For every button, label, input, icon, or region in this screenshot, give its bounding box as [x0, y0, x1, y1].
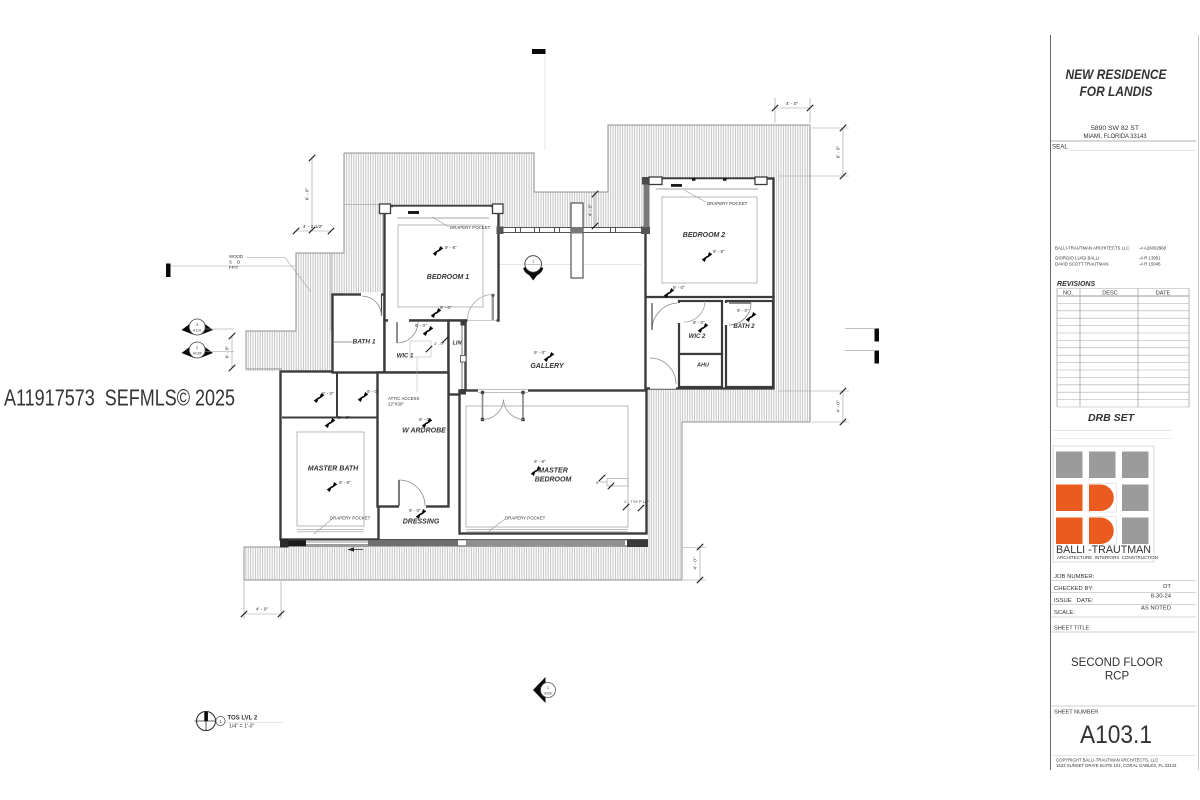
svg-text:9' - 0": 9' - 0" — [440, 305, 452, 310]
svg-text:4' - 2 1/2": 4' - 2 1/2" — [303, 224, 324, 230]
svg-text:9' - 8": 9' - 8" — [713, 249, 725, 254]
svg-text:1: 1 — [219, 719, 222, 724]
svg-text:MASTER: MASTER — [538, 468, 568, 475]
svg-text:BEDROOM: BEDROOM — [535, 477, 572, 484]
svg-text:TOS LVL 2: TOS LVL 2 — [228, 716, 258, 722]
svg-text:8-30-24: 8-30-24 — [1151, 594, 1172, 600]
svg-text:GALLERY: GALLERY — [530, 363, 565, 370]
svg-text:ATTIC ACCESS: ATTIC ACCESS — [388, 396, 419, 401]
svg-text:LIN: LIN — [453, 341, 463, 347]
svg-text:RCP: RCP — [1105, 671, 1130, 683]
svg-text:DAVID SCOTT TRAUTMAN: DAVID SCOTT TRAUTMAN — [1055, 262, 1108, 267]
svg-text:6' - 0": 6' - 0" — [305, 188, 311, 201]
svg-text:MIAMI, FLORIDA 33143: MIAMI, FLORIDA 33143 — [1084, 133, 1147, 140]
svg-text:SECOND FLOOR: SECOND FLOOR — [1071, 657, 1163, 669]
svg-text:22"X30": 22"X30" — [388, 402, 404, 407]
svg-text:COPYRIGHT BALLI-TRAUTMAN ARCHI: COPYRIGHT BALLI-TRAUTMAN ARCHITECTS, LLC — [1056, 758, 1158, 763]
svg-text:BALLI-TRAUTMAN ARCHITECTS LLC: BALLI-TRAUTMAN ARCHITECTS LLC — [1055, 246, 1130, 251]
svg-text:1533 SUNSET DRIVE SUITE 101, C: 1533 SUNSET DRIVE SUITE 101, CORAL GABLE… — [1056, 763, 1177, 768]
svg-text:1' - 7 5Y P 1/2": 1' - 7 5Y P 1/2" — [624, 500, 650, 504]
svg-text:9' - 8": 9' - 8" — [534, 459, 546, 464]
svg-text:JOB NUMBER:: JOB NUMBER: — [1054, 574, 1095, 580]
svg-text:A103.1: A103.1 — [1080, 721, 1152, 749]
svg-text:9' - 0": 9' - 0" — [415, 323, 427, 328]
svg-text:NO.: NO. — [1063, 291, 1073, 297]
svg-text:4' - 0": 4' - 0" — [588, 204, 594, 217]
svg-text:NEW RESIDENCE: NEW RESIDENCE — [1066, 66, 1168, 82]
svg-text:W ARDROBE: W ARDROBE — [402, 428, 446, 435]
svg-text:4' - 0": 4' - 0" — [786, 101, 799, 107]
svg-text:A 101: A 101 — [193, 328, 202, 332]
svg-text:4' - 0": 4' - 0" — [836, 400, 842, 413]
svg-text:6' - 0": 6' - 0" — [836, 146, 842, 159]
svg-text:SCALE:: SCALE: — [1054, 610, 1075, 616]
svg-text:9' - 8": 9' - 8" — [445, 245, 457, 250]
svg-text:CHECKED BY:: CHECKED BY: — [1054, 586, 1094, 592]
svg-text:DATE: DATE — [1156, 291, 1171, 297]
svg-text:WOOD: WOOD — [229, 254, 243, 259]
svg-text:A/106: A/106 — [193, 351, 202, 355]
svg-text:BATH 2: BATH 2 — [733, 324, 755, 330]
svg-text:WIC 2: WIC 2 — [689, 334, 706, 340]
svg-text:-A R 15045: -A R 15045 — [1139, 262, 1161, 267]
svg-text:9' - 0": 9' - 0" — [409, 508, 421, 513]
svg-text:A106: A106 — [544, 692, 552, 696]
svg-text:BEDROOM 2: BEDROOM 2 — [683, 232, 726, 239]
svg-text:9' - 0": 9' - 0" — [367, 389, 379, 394]
svg-text:WIC 1: WIC 1 — [397, 354, 414, 360]
svg-text:MASTER BATH: MASTER BATH — [308, 466, 359, 473]
svg-text:9' - 0": 9' - 0" — [534, 350, 546, 355]
svg-text:9' - 0": 9' - 0" — [322, 391, 334, 396]
svg-text:-A A26002968: -A A26002968 — [1139, 246, 1167, 251]
svg-text:S O: S O — [229, 260, 241, 265]
svg-text:DRAPERY POCKET: DRAPERY POCKET — [707, 201, 748, 206]
svg-text:6' - 0": 6' - 0" — [225, 346, 231, 359]
svg-text:4' - 0": 4' - 0" — [256, 607, 269, 613]
svg-text:DRAPERY POCKET: DRAPERY POCKET — [450, 225, 491, 230]
svg-text:9' - 0": 9' - 0" — [693, 320, 705, 325]
svg-text:FOR LANDIS: FOR LANDIS — [1080, 83, 1154, 99]
svg-text:DRAPERY POCKET: DRAPERY POCKET — [505, 516, 546, 521]
svg-text:SHEET TITLE: SHEET TITLE — [1054, 626, 1090, 632]
svg-text:AHU: AHU — [696, 363, 710, 369]
svg-text:SEAL: SEAL — [1052, 144, 1068, 151]
svg-text:ISSUE DATE:: ISSUE DATE: — [1054, 598, 1094, 604]
svg-text:9' - 0": 9' - 0" — [419, 417, 431, 422]
svg-text:DRB SET: DRB SET — [1088, 412, 1136, 424]
svg-text:9' - 0": 9' - 0" — [737, 308, 749, 313]
svg-text:FFIT: FFIT — [229, 265, 239, 270]
svg-text:ARCHITECTURE INTERIORS CONST: ARCHITECTURE INTERIORS CONSTRUCTION — [1057, 555, 1158, 560]
svg-text:9' - 0": 9' - 0" — [673, 285, 685, 290]
svg-text:BEDROOM 1: BEDROOM 1 — [427, 274, 470, 281]
svg-text:DRESSING: DRESSING — [403, 519, 440, 526]
svg-text:1: 1 — [532, 260, 534, 264]
svg-text:-A R 13951: -A R 13951 — [1139, 256, 1161, 261]
svg-text:DRAPERY POCKET: DRAPERY POCKET — [330, 516, 371, 521]
svg-text:A11917573 SEFMLS© 2025: A11917573 SEFMLS© 2025 — [4, 385, 235, 411]
svg-text:5890 SW 82 ST: 5890 SW 82 ST — [1091, 125, 1139, 132]
svg-text:3: 3 — [196, 323, 198, 327]
svg-text:1: 1 — [547, 686, 549, 690]
svg-text:9' - 0": 9' - 0" — [338, 415, 350, 420]
svg-text:BATH 1: BATH 1 — [353, 339, 376, 346]
svg-text:1/4" = 1'-0": 1/4" = 1'-0" — [229, 724, 254, 730]
svg-text:AS NOTED: AS NOTED — [1141, 606, 1171, 612]
svg-text:REVISIONS: REVISIONS — [1057, 281, 1095, 288]
svg-text:SHEET NUMBER: SHEET NUMBER — [1054, 710, 1098, 716]
svg-text:2: 2 — [196, 346, 198, 350]
svg-text:4' - 0": 4' - 0" — [693, 557, 699, 570]
svg-text:DT: DT — [1163, 584, 1171, 590]
svg-text:GIORGIO LUIGI BALLI: GIORGIO LUIGI BALLI — [1055, 256, 1099, 261]
svg-text:DESC: DESC — [1102, 291, 1118, 297]
svg-text:9' - 8": 9' - 8" — [339, 480, 351, 485]
